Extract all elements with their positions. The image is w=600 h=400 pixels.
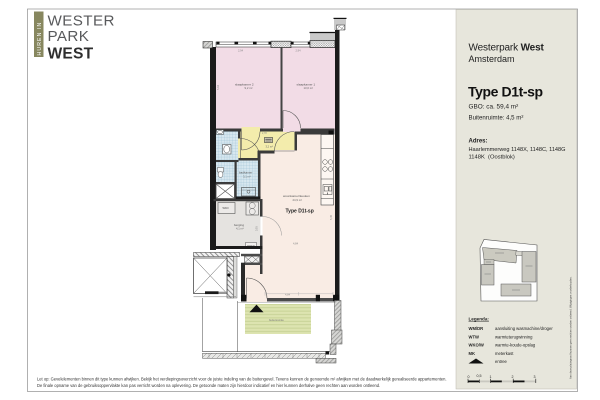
- svg-text:24,9 m²: 24,9 m²: [293, 198, 303, 202]
- svg-text:warmte-koude-opslag: warmte-koude-opslag: [495, 343, 536, 348]
- svg-text:aansluiting wasmachine/droger: aansluiting wasmachine/droger: [495, 326, 553, 331]
- svg-text:2: 2: [512, 375, 514, 379]
- svg-text:badkamer: badkamer: [239, 171, 252, 175]
- svg-text:4,1 m²: 4,1 m²: [236, 227, 244, 231]
- svg-text:1148K (Oostblok): 1148K (Oostblok): [469, 155, 515, 161]
- svg-text:Type D1t-sp: Type D1t-sp: [468, 84, 543, 100]
- svg-text:berging: berging: [234, 223, 244, 227]
- svg-text:WKO: WKO: [223, 206, 229, 210]
- svg-text:3,2 m²: 3,2 m²: [266, 145, 273, 149]
- svg-text:3,1 m²: 3,1 m²: [243, 174, 251, 178]
- svg-text:0: 0: [468, 375, 470, 379]
- svg-text:2,94: 2,94: [238, 49, 244, 53]
- svg-text:Haarlemmerweg 1148X, 1148C, 11: Haarlemmerweg 1148X, 1148C, 1148G: [469, 147, 566, 153]
- svg-text:PARK: PARK: [48, 28, 90, 45]
- svg-text:Aan deze plattegrond kunnen ge: Aan deze plattegrond kunnen geen rechten…: [569, 276, 573, 379]
- svg-text:Amsterdam: Amsterdam: [469, 54, 515, 64]
- svg-text:4,84: 4,84: [285, 292, 291, 296]
- svg-text:GBO: ca. 59,4 m²: GBO: ca. 59,4 m²: [469, 104, 519, 111]
- svg-text:buitenruimte: buitenruimte: [269, 318, 284, 322]
- svg-text:MK: MK: [469, 351, 476, 356]
- svg-text:13,0 m²: 13,0 m²: [304, 86, 314, 90]
- svg-text:Buitenruimte: 4,5 m²: Buitenruimte: 4,5 m²: [469, 115, 524, 122]
- svg-text:Legenda:: Legenda:: [469, 317, 490, 322]
- svg-text:0,93: 0,93: [256, 226, 259, 231]
- svg-text:WM/DR: WM/DR: [469, 326, 484, 331]
- svg-text:Westerpark West: Westerpark West: [469, 42, 545, 53]
- svg-text:3: 3: [534, 375, 536, 379]
- svg-text:entree: entree: [495, 359, 508, 364]
- svg-text:meterkast: meterkast: [495, 351, 514, 356]
- svg-text:WESTER: WESTER: [48, 12, 115, 29]
- svg-text:warmteterugwinning: warmteterugwinning: [495, 334, 533, 339]
- svg-text:WEST: WEST: [48, 46, 94, 63]
- svg-text:Type D1t-sp: Type D1t-sp: [286, 209, 314, 215]
- svg-text:2,78: 2,78: [262, 132, 267, 135]
- svg-text:9,2 m²: 9,2 m²: [245, 86, 253, 90]
- svg-text:HUREN IN: HUREN IN: [37, 22, 43, 56]
- svg-text:4,84: 4,84: [293, 242, 299, 246]
- svg-text:De finale opname van de gebrui: De finale opname van de gebruiksoppervla…: [37, 383, 380, 388]
- svg-text:Let op: Gevelelementen binnen: Let op: Gevelelementen binnen dit type k…: [37, 377, 447, 382]
- svg-text:Adres:: Adres:: [469, 139, 488, 145]
- svg-text:WKO/W: WKO/W: [469, 343, 484, 348]
- svg-text:5,45: 5,45: [329, 214, 333, 220]
- svg-text:5,94: 5,94: [216, 84, 220, 90]
- svg-text:2,94: 2,94: [296, 49, 302, 53]
- svg-text:0,5: 0,5: [477, 374, 482, 378]
- svg-text:1: 1: [490, 375, 492, 379]
- svg-text:WTW: WTW: [469, 334, 480, 339]
